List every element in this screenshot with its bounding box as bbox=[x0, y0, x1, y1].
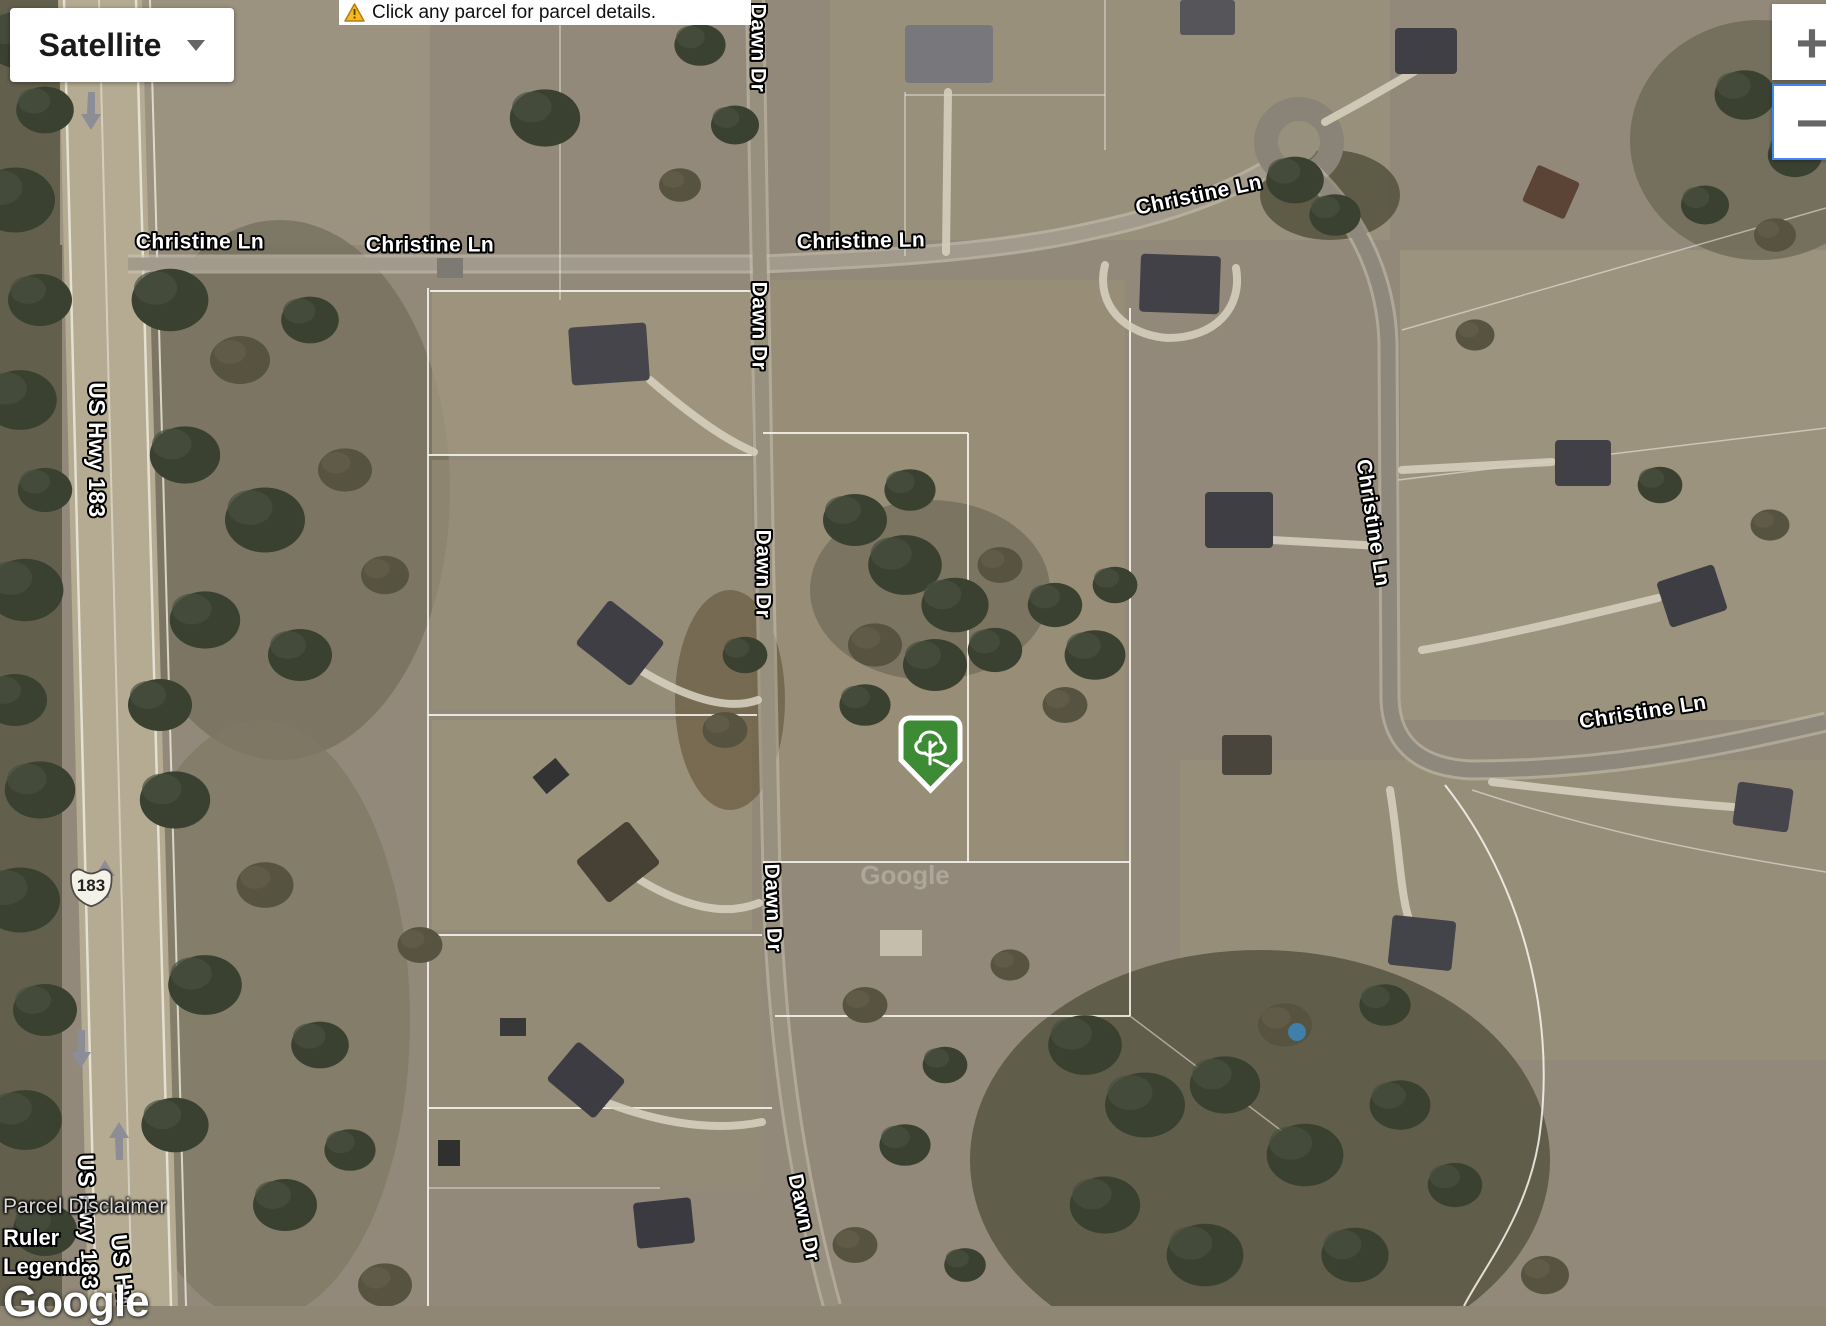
chevron-down-icon bbox=[187, 40, 205, 51]
ruler-link[interactable]: Ruler bbox=[3, 1227, 59, 1249]
map-watermark: Google bbox=[860, 860, 950, 890]
road-label: Dawn Dr bbox=[760, 863, 786, 952]
road-label: Christine Ln bbox=[797, 228, 926, 253]
parcel-disclaimer-link[interactable]: Parcel Disclaimer bbox=[3, 1196, 166, 1217]
zoom-out-button[interactable]: − bbox=[1772, 84, 1826, 160]
road-label: Christine Ln bbox=[136, 231, 265, 254]
plus-icon: + bbox=[1796, 10, 1826, 75]
road-label: Christine Ln bbox=[366, 234, 495, 257]
parcel-map-app: { "controls": { "map_type_label": "Satel… bbox=[0, 0, 1826, 1306]
map-type-button[interactable]: Satellite bbox=[10, 8, 234, 82]
warning-triangle-icon bbox=[344, 3, 365, 22]
svg-text:183: 183 bbox=[77, 876, 105, 895]
road-label: Dawn Dr bbox=[747, 282, 770, 371]
zoom-in-button[interactable]: + bbox=[1772, 4, 1826, 80]
map-type-label: Satellite bbox=[39, 27, 162, 64]
satellite-map: Google 183 Christine LnChristine LnChris… bbox=[0, 0, 1826, 1306]
road-label: Dawn Dr bbox=[751, 530, 774, 619]
trampoline bbox=[1288, 1023, 1306, 1041]
notification-bar: Click any parcel for parcel details. bbox=[339, 0, 751, 25]
google-logo[interactable]: Google bbox=[3, 1280, 149, 1324]
minus-icon: − bbox=[1796, 90, 1826, 155]
notification-text: Click any parcel for parcel details. bbox=[372, 2, 656, 24]
map-canvas[interactable]: Google 183 Christine LnChristine LnChris… bbox=[0, 0, 1826, 1306]
legend-link[interactable]: Legend bbox=[3, 1256, 81, 1278]
road-label: US Hwy 183 bbox=[84, 382, 110, 517]
